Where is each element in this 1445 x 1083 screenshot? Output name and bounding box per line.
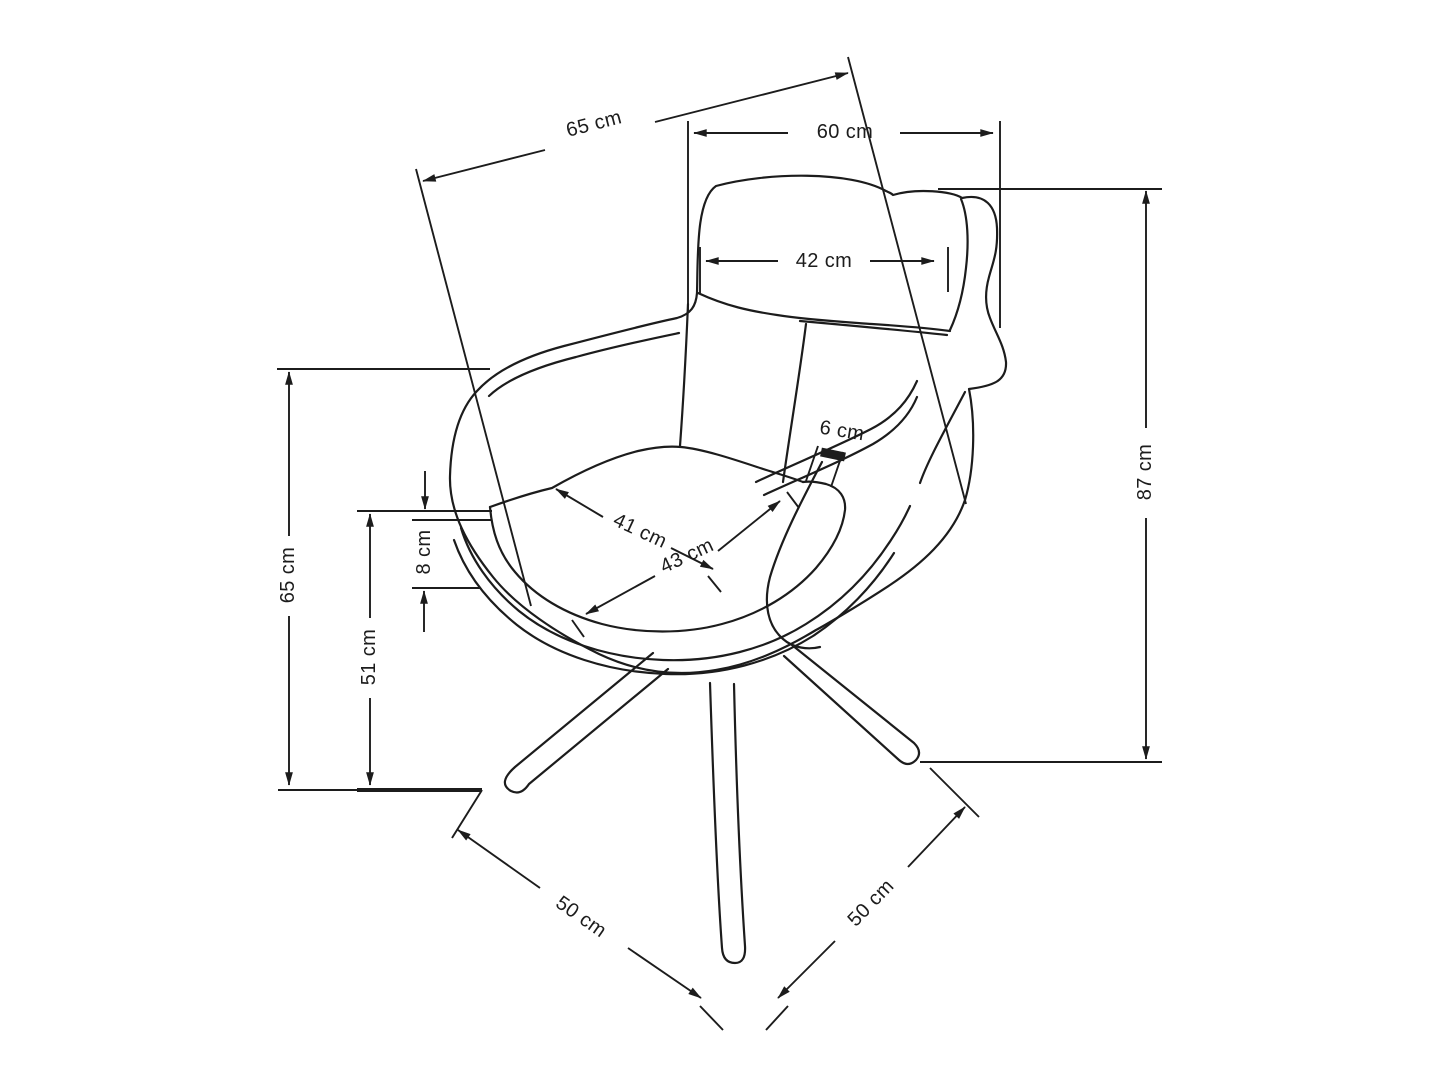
back-right-leg: [784, 645, 919, 764]
tick-50R-upper: [930, 768, 979, 817]
tick-43-lower: [572, 620, 584, 637]
dim-label-headrest-width: 42 cm: [796, 251, 852, 271]
front-left-leg: [505, 653, 668, 792]
tick-50R-lower: [766, 1006, 788, 1030]
shell-rim-upper: [461, 506, 910, 660]
dim-label-height-overall: 87 cm: [1135, 444, 1155, 500]
backrest-seam-left: [680, 304, 688, 446]
dimension-diagram: 65 cm 60 cm 42 cm 6 cm 41 cm 43 cm 8 cm …: [0, 0, 1445, 1083]
dim-label-armrest-height: 65 cm: [278, 547, 298, 603]
tick-41-lower: [708, 576, 721, 592]
dim-label-seat-height: 51 cm: [359, 629, 379, 685]
extension-lines: [277, 57, 1162, 1030]
chair-line-art: [0, 0, 1445, 1083]
front-leg: [710, 683, 745, 963]
right-wing-fold: [920, 392, 965, 483]
left-armrest-inner-edge: [489, 333, 679, 396]
shell-outline: [450, 176, 1006, 673]
headrest-right-edge: [950, 199, 968, 330]
tick-50L-upper: [452, 790, 482, 838]
dim-label-cushion-thickness: 8 cm: [414, 530, 434, 575]
tick-43-upper: [787, 492, 799, 508]
dim-label-width-overall: 60 cm: [817, 122, 873, 142]
seat-cushion-back-edge: [490, 447, 803, 507]
backrest-seam-center: [783, 324, 806, 482]
dimension-65cm-diagonal: [423, 73, 848, 181]
tick-50L-lower: [700, 1006, 723, 1030]
chair-drawing: [450, 176, 1006, 963]
